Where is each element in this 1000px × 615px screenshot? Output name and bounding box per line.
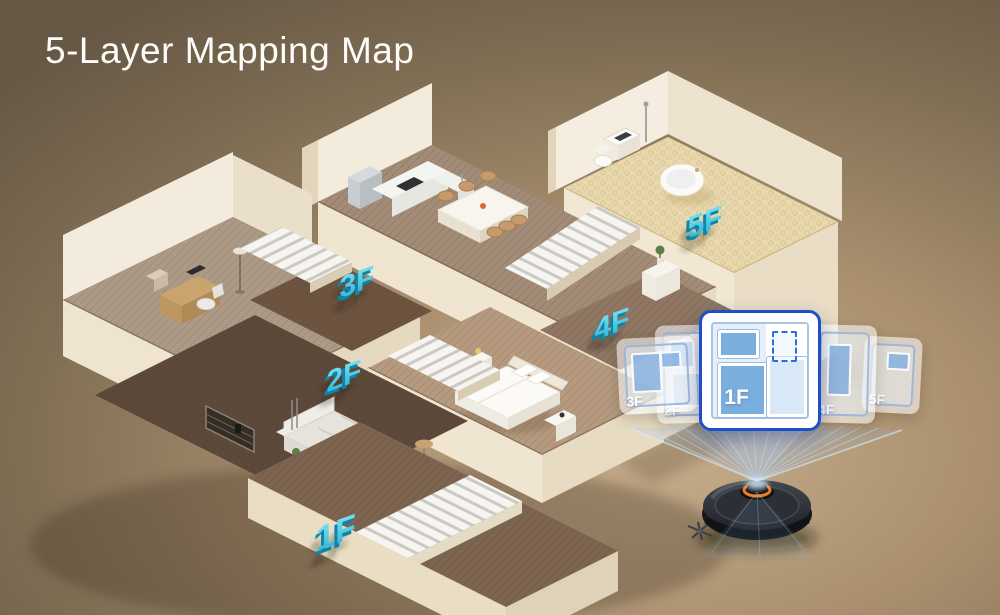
floor-plan-1f: 1F bbox=[711, 322, 809, 419]
floor-map-card-3f: 3F bbox=[616, 335, 698, 415]
floor-map-card-1f: 1F bbox=[699, 310, 821, 431]
page-title: 5-Layer Mapping Map bbox=[45, 30, 414, 72]
room-shape bbox=[827, 343, 852, 396]
room-shape bbox=[718, 330, 760, 358]
room-shape bbox=[767, 357, 808, 417]
floor-map-card-fan: 2F 3F 5F 4F 1F bbox=[0, 0, 1000, 615]
virtual-zone-dashed-rect bbox=[772, 331, 797, 363]
room-shape bbox=[660, 351, 682, 369]
card-label-1f: 1F bbox=[724, 386, 749, 410]
room-shape bbox=[887, 352, 910, 371]
promo-image: 5F 5F 5F 4F 4F 4F 3F 3F 3F 2F 2F 2F 1F 1… bbox=[0, 0, 1000, 615]
card-label-3f: 3F bbox=[626, 393, 643, 410]
room-shape bbox=[631, 352, 663, 393]
